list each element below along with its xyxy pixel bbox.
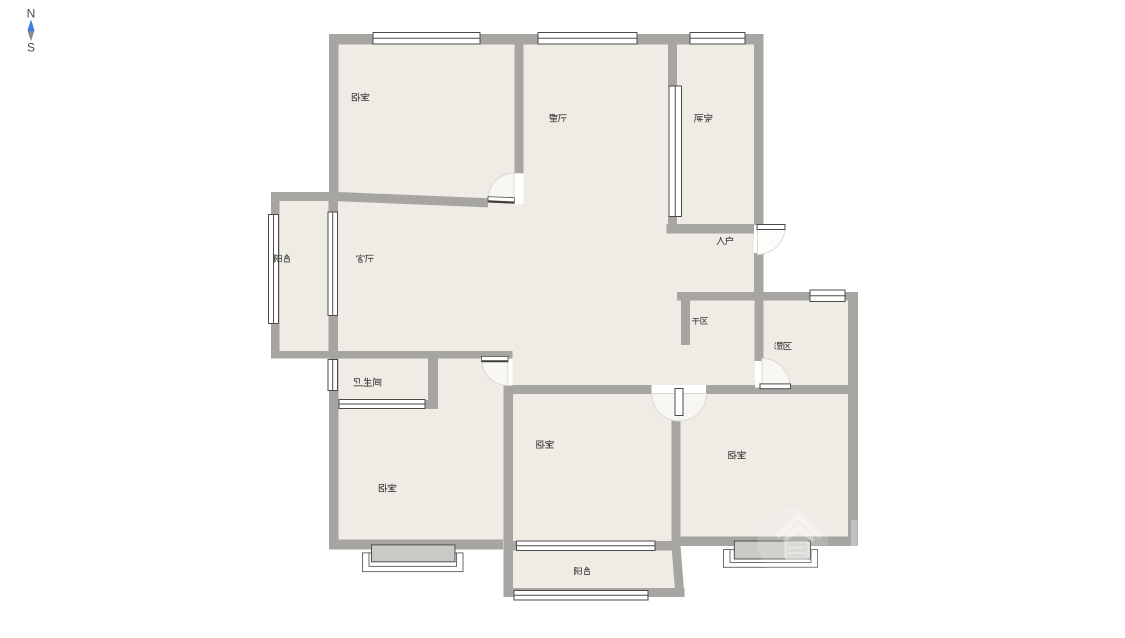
svg-text:S: S: [27, 41, 35, 55]
svg-text:N: N: [27, 7, 36, 21]
